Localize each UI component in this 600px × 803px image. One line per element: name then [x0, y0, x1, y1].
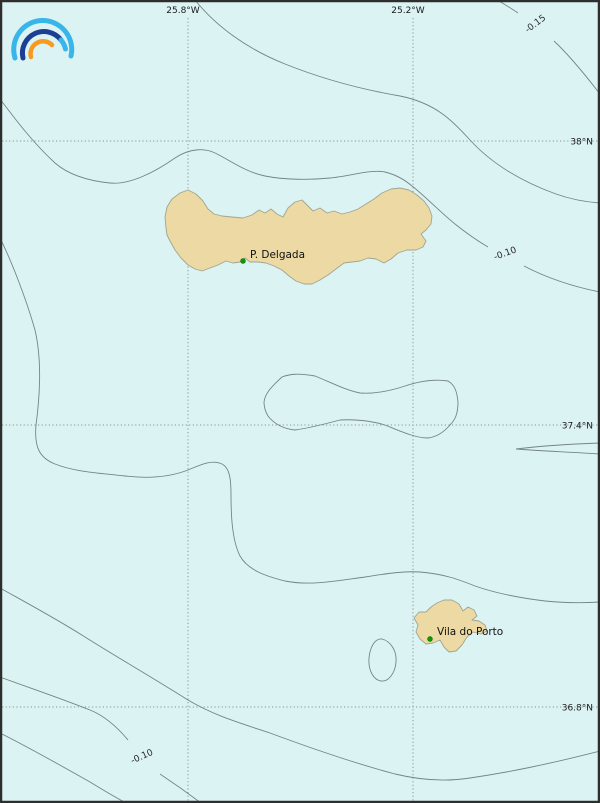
meridian-label-25-8W: 25.8°W	[166, 6, 200, 16]
ocean-background	[0, 0, 600, 803]
city-label-p-delgada: P. Delgada	[250, 249, 305, 261]
parallel-label-36-8N: 36.8°N	[562, 704, 593, 714]
map-canvas: P. Delgada Vila do Porto -0.15 -0.10 -0.…	[0, 0, 600, 803]
weather-map: P. Delgada Vila do Porto -0.15 -0.10 -0.…	[0, 0, 600, 803]
parallel-label-38N: 38°N	[570, 138, 593, 148]
parallel-label-37-4N: 37.4°N	[562, 422, 593, 432]
meridian-label-25-2W: 25.2°W	[391, 6, 425, 16]
city-marker-p-delgada	[241, 259, 246, 264]
city-marker-vila-do-porto	[428, 637, 433, 642]
city-label-vila-do-porto: Vila do Porto	[437, 626, 503, 638]
